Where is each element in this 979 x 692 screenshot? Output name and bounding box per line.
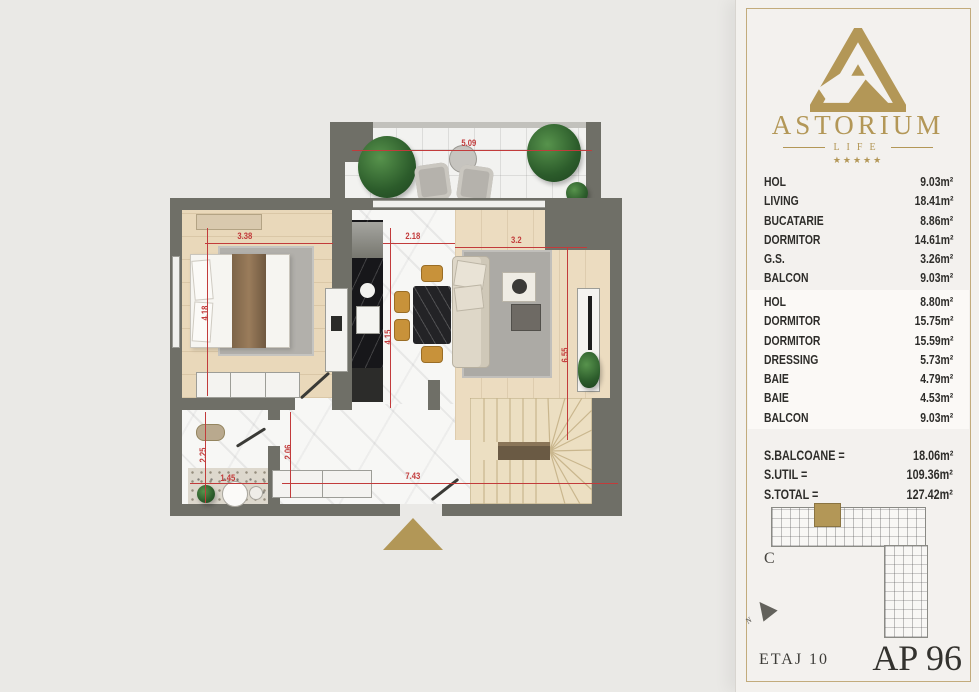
floor-plan: 5.09 3.38 2.18 3.2 4.18 4.15 6.55 2.25 2… [0, 0, 733, 692]
north-label: N [744, 615, 754, 625]
dining-chair-2 [394, 319, 410, 341]
kitchen-sink [360, 283, 375, 298]
dim-line-bedroom [205, 243, 333, 244]
highlighted-unit [814, 503, 841, 527]
room-label: BALCON [764, 268, 808, 287]
room-area: 9.03m² [920, 268, 953, 287]
info-panel: ASTORIUM LIFE ★★★★★ HOL9.03m² LIVING18.4… [735, 0, 979, 692]
area-row: HOL9.03m² [764, 172, 953, 191]
room-label: HOL [764, 292, 786, 311]
bedroom-bench [196, 214, 262, 230]
room-label: HOL [764, 172, 786, 191]
room-area: 18.41m² [914, 191, 953, 210]
toilet [196, 424, 225, 441]
dim-line-bath [190, 483, 268, 484]
room-area: 4.53m² [920, 388, 953, 407]
hall-cabinets [272, 470, 372, 498]
building-wing [884, 545, 928, 638]
area-row: BALCON9.03m² [764, 408, 953, 427]
kitchen-low-unit [352, 368, 383, 402]
total-row: S.UTIL =109.36m² [764, 465, 953, 484]
tagline-line-right [891, 147, 933, 148]
bottom-wall-right [442, 504, 622, 516]
left-wall [170, 198, 182, 516]
area-list-bottom: HOL8.80m² DORMITOR15.75m² DORMITOR15.59m… [764, 292, 953, 427]
dim-line-balcony [352, 150, 592, 151]
kitchen-fridge [352, 222, 383, 258]
dim-living-width: 3.2 [511, 235, 522, 245]
wardrobe [196, 372, 300, 398]
balcony-right-wall [586, 122, 601, 202]
area-row: G.S.3.26m² [764, 249, 953, 268]
bath-wall-stub [268, 410, 280, 420]
dim-line-kitchen-v [390, 228, 391, 408]
brand-logo [736, 28, 979, 117]
key-plan: C N [736, 500, 979, 640]
section-label: C [764, 550, 775, 568]
room-area: 15.59m² [914, 331, 953, 350]
dining-table [413, 286, 451, 344]
area-row: BALCON9.03m² [764, 268, 953, 287]
room-area: 8.86m² [920, 211, 953, 230]
dining-chair-3 [421, 265, 443, 282]
apartment-label: AP 96 [872, 637, 962, 679]
area-row: DRESSING5.73m² [764, 350, 953, 369]
room-area: 14.61m² [914, 230, 953, 249]
brand-stars: ★★★★★ [736, 155, 979, 166]
room-area: 3.26m² [920, 249, 953, 268]
living-plant [578, 352, 600, 388]
bottom-wall-left [170, 504, 400, 516]
dim-bottom-width: 7.43 [405, 471, 420, 481]
total-value: 18.06m² [913, 446, 953, 465]
dim-kitchen-height: 4.15 [383, 330, 393, 345]
room-label: DORMITOR [764, 230, 820, 249]
area-row: DORMITOR15.75m² [764, 311, 953, 330]
building-bar [771, 507, 926, 547]
area-row: HOL8.80m² [764, 292, 953, 311]
room-label: DORMITOR [764, 331, 820, 350]
room-area: 4.79m² [920, 369, 953, 388]
stairs-side-wall [592, 398, 610, 504]
room-label: G.S. [764, 249, 785, 268]
dim-balcony-width: 5.09 [461, 138, 476, 148]
area-row: BAIE4.53m² [764, 388, 953, 407]
room-label: DRESSING [764, 350, 818, 369]
triangle-logo-icon [810, 28, 906, 112]
bed-runner [232, 254, 266, 348]
room-label: BUCATARIE [764, 211, 824, 230]
area-row: BUCATARIE8.86m² [764, 211, 953, 230]
room-area: 5.73m² [920, 350, 953, 369]
floor-label: ETAJ 10 [759, 651, 829, 669]
balcony-plant-left [358, 136, 416, 198]
dim-living-height: 6.55 [560, 348, 570, 363]
bedroom-window [172, 256, 180, 348]
room-label: DORMITOR [764, 311, 820, 330]
totals-list: S.BALCOANE =18.06m² S.UTIL =109.36m² S.T… [764, 446, 953, 504]
balcony-chair-left [414, 162, 453, 202]
brand-tagline-row: LIFE [736, 142, 979, 153]
area-list-top: HOL9.03m² LIVING18.41m² BUCATARIE8.86m² … [764, 172, 953, 288]
dining-chair-4 [421, 346, 443, 363]
dim-line-bottom [282, 483, 618, 484]
bath-plant [197, 485, 215, 503]
area-row: BAIE4.79m² [764, 369, 953, 388]
dim-bedroom-height: 4.18 [200, 306, 210, 321]
bed-pillow-top [191, 259, 213, 301]
balcony-plant-right [527, 124, 581, 182]
side-table [511, 304, 541, 331]
dim-bath-width: 1.45 [220, 473, 235, 483]
room-label: LIVING [764, 191, 799, 210]
dim-bath-height: 2.25 [198, 448, 208, 463]
coffee-table-decor [512, 279, 527, 294]
flyer-root: { "colors": { "brand_gold": "#b39757", "… [0, 0, 979, 692]
room-area: 9.03m² [920, 408, 953, 427]
brand-tagline: LIFE [833, 142, 882, 153]
dining-chair-1 [394, 291, 410, 313]
north-arrow-icon [752, 596, 777, 621]
dim-bedroom-width: 3.38 [237, 231, 252, 241]
top-right-wall-mass [545, 198, 622, 250]
dim-hall-height: 2.06 [283, 445, 293, 460]
sofa-pillow-2 [454, 284, 485, 311]
room-area: 15.75m² [914, 311, 953, 330]
bath-sink [222, 481, 248, 507]
entrance-arrow [383, 518, 443, 550]
dim-line-kitchen [383, 243, 455, 244]
brand-name: ASTORIUM [736, 110, 979, 141]
total-label: S.UTIL = [764, 465, 807, 484]
area-row: LIVING18.41m² [764, 191, 953, 210]
area-row: DORMITOR14.61m² [764, 230, 953, 249]
room-label: BALCON [764, 408, 808, 427]
room-area: 8.80m² [920, 292, 953, 311]
total-label: S.BALCOANE = [764, 446, 845, 465]
bedroom-hall-wall [182, 398, 295, 410]
dim-line-living-v [567, 247, 568, 440]
bath-sink-small [249, 486, 263, 500]
staircase [470, 398, 592, 504]
room-label: BAIE [764, 388, 789, 407]
total-row: S.BALCOANE =18.06m² [764, 446, 953, 465]
dim-kitchen-width: 2.18 [405, 231, 420, 241]
area-row: DORMITOR15.59m² [764, 331, 953, 350]
tv [588, 296, 592, 350]
tagline-line-left [783, 147, 825, 148]
room-label: BAIE [764, 369, 789, 388]
dresser-decor [331, 316, 342, 331]
room-area: 9.03m² [920, 172, 953, 191]
kitchen-cooktop [356, 306, 380, 334]
hall-wall-stub [428, 380, 440, 410]
total-value: 109.36m² [907, 465, 953, 484]
